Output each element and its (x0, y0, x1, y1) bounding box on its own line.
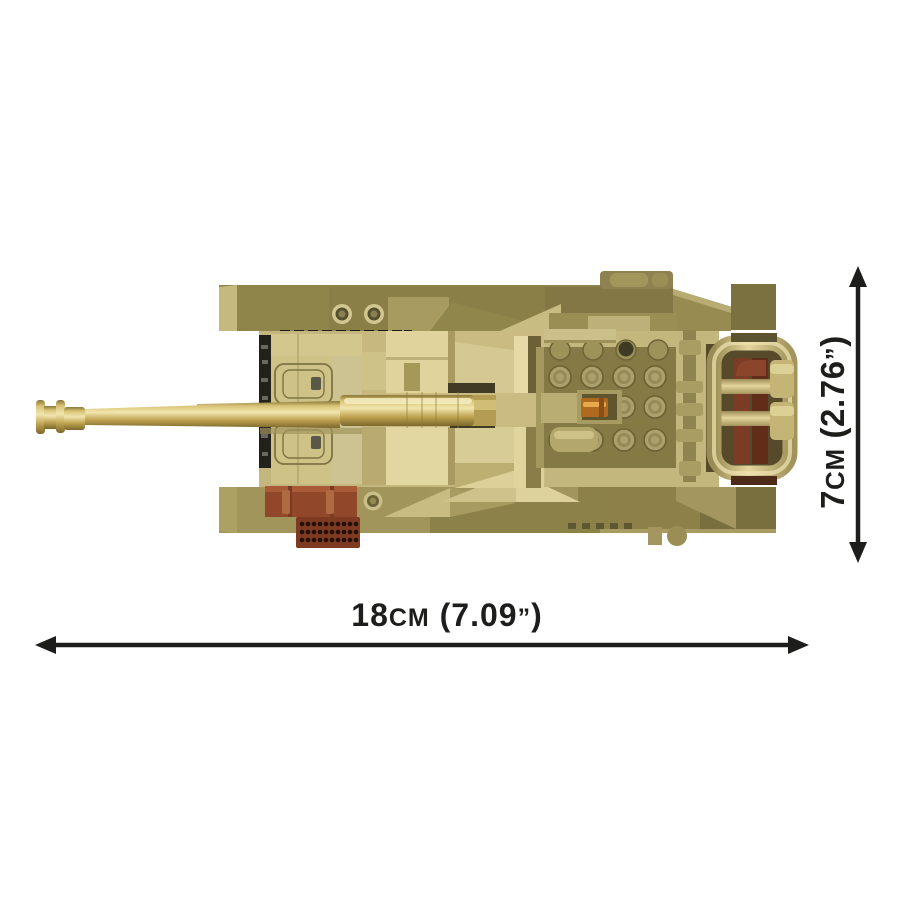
svg-text:18CM (7.09”): 18CM (7.09”) (351, 597, 542, 633)
svg-text:7CM (2.76”): 7CM (2.76”) (814, 335, 851, 509)
